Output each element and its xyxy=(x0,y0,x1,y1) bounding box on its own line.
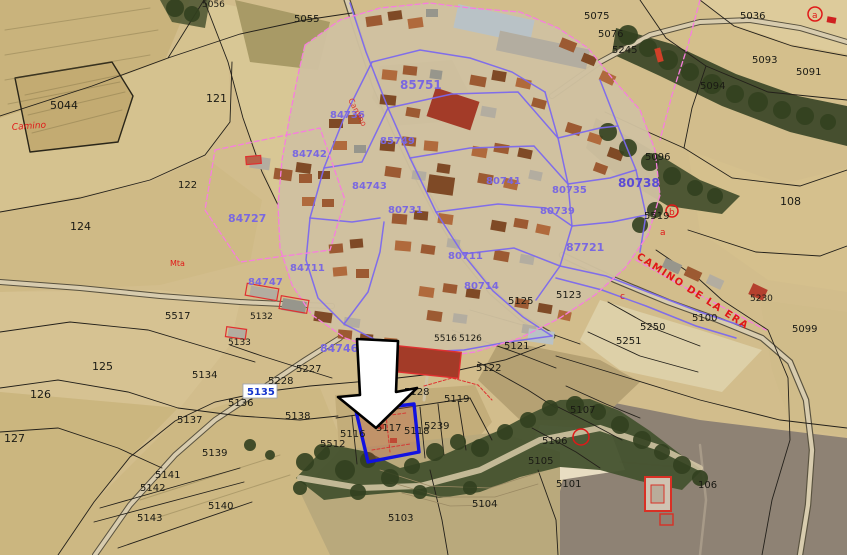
street-label-80735: 80735 xyxy=(552,185,587,196)
tree xyxy=(335,460,355,480)
parcel-label-5056: 5056 xyxy=(202,0,225,10)
building xyxy=(427,174,455,195)
parcel-label-5516: 5516 xyxy=(434,334,457,344)
map-svg: 5056505512150441221241251261275075507652… xyxy=(0,0,847,555)
parcel-label-5119: 5119 xyxy=(444,394,469,405)
tree xyxy=(796,107,814,125)
parcel-label-126: 126 xyxy=(30,388,51,401)
parcel-label-5075: 5075 xyxy=(584,11,609,22)
tree xyxy=(265,450,275,460)
street-label-87721: 87721 xyxy=(566,241,604,254)
parcel-label-5227: 5227 xyxy=(296,364,321,375)
parcel-label-5139: 5139 xyxy=(202,448,227,459)
street-label-80711: 80711 xyxy=(448,251,483,262)
parcel-label-5104: 5104 xyxy=(472,499,497,510)
tree xyxy=(707,188,723,204)
tree xyxy=(184,6,200,22)
tree xyxy=(381,469,399,487)
parcel-label-5142: 5142 xyxy=(140,483,165,494)
tree xyxy=(673,456,691,474)
parcel-label-5055: 5055 xyxy=(294,14,319,25)
parcel-label-5141: 5141 xyxy=(155,470,180,481)
street-label-85749: 85749 xyxy=(380,136,415,147)
parcel-label-125: 125 xyxy=(92,360,113,373)
building xyxy=(418,286,434,298)
building xyxy=(322,199,334,207)
parcel-label-5099: 5099 xyxy=(792,324,817,335)
building xyxy=(333,266,348,276)
tree xyxy=(293,481,307,495)
parcel-label-5245: 5245 xyxy=(612,45,637,56)
parcel-label-5132: 5132 xyxy=(250,312,273,322)
parcel-label-5126: 5126 xyxy=(459,334,482,344)
building xyxy=(436,163,450,174)
parcel-label-5123: 5123 xyxy=(556,290,581,301)
tree xyxy=(726,85,744,103)
parcel-label-121: 121 xyxy=(206,92,227,105)
parcel-label-5096: 5096 xyxy=(645,152,670,163)
building xyxy=(333,141,347,150)
building xyxy=(356,269,369,278)
parcel-label-5100: 5100 xyxy=(692,313,717,324)
parcel-label-106: 106 xyxy=(698,480,717,491)
building xyxy=(295,162,311,174)
label-a: a xyxy=(660,228,666,238)
parcel-label-108: 108 xyxy=(780,195,801,208)
parcel-label-5230: 5230 xyxy=(750,294,773,304)
tree xyxy=(639,39,657,57)
parcel-label-5121: 5121 xyxy=(504,341,529,352)
parcel-label-5076: 5076 xyxy=(598,29,623,40)
parcel-label-5036: 5036 xyxy=(740,11,765,22)
parcel-label-124: 124 xyxy=(70,220,91,233)
parcel-label-5125: 5125 xyxy=(508,296,533,307)
parcel-label-5118: 5118 xyxy=(404,426,429,437)
parcel-label-5093: 5093 xyxy=(752,55,777,66)
parcel-label-5103: 5103 xyxy=(388,513,413,524)
parcel-label-5137: 5137 xyxy=(177,415,202,426)
street-label-84727: 84727 xyxy=(228,212,266,225)
tree xyxy=(773,101,791,119)
tree xyxy=(542,400,558,416)
tree xyxy=(350,484,366,500)
parcel-label-5512: 5512 xyxy=(320,439,345,450)
tree xyxy=(611,416,629,434)
tree xyxy=(654,444,670,460)
label-c: c xyxy=(620,292,625,302)
building xyxy=(382,69,398,81)
parcel-label-5250: 5250 xyxy=(640,322,665,333)
parcel-label-127: 127 xyxy=(4,432,25,445)
tree xyxy=(633,431,651,449)
building xyxy=(350,238,364,248)
label-a: a xyxy=(812,11,818,21)
street-label-84742: 84742 xyxy=(292,149,327,160)
street-label-85751: 85751 xyxy=(400,78,442,92)
red-structures-rect xyxy=(651,485,664,503)
parcel-label-5134: 5134 xyxy=(192,370,217,381)
label-b: b xyxy=(669,208,675,218)
parcel-label-5122: 5122 xyxy=(476,363,501,374)
parcel-label-5140: 5140 xyxy=(208,501,233,512)
parcel-label-5044: 5044 xyxy=(50,99,78,112)
parcel-label-5133: 5133 xyxy=(228,338,251,348)
street-label-80741: 80741 xyxy=(486,176,521,187)
parcel-label-5107: 5107 xyxy=(570,405,595,416)
tree xyxy=(681,63,699,81)
parcel-label-5101: 5101 xyxy=(556,479,581,490)
building xyxy=(424,140,439,151)
tree xyxy=(450,434,466,450)
building xyxy=(380,94,397,106)
street-label-84747: 84747 xyxy=(248,277,283,288)
tree xyxy=(404,458,420,474)
building xyxy=(354,145,366,153)
tree xyxy=(820,114,836,130)
aerial-cadastral-map: 5056505512150441221241251261275075507652… xyxy=(0,0,847,555)
building xyxy=(426,310,442,322)
building xyxy=(318,171,330,179)
building xyxy=(395,240,412,251)
parcel-label-5143: 5143 xyxy=(137,513,162,524)
tree xyxy=(471,439,489,457)
parcel-label-5228: 5228 xyxy=(268,376,293,387)
tree xyxy=(244,439,256,451)
parcel-label-5138: 5138 xyxy=(285,411,310,422)
tree xyxy=(687,180,703,196)
tree xyxy=(619,139,637,157)
street-label-84746: 84746 xyxy=(320,342,359,355)
red-structures-rect xyxy=(246,155,262,164)
building xyxy=(299,174,312,183)
building xyxy=(407,17,423,29)
parcel-label-5094: 5094 xyxy=(700,81,725,92)
tree xyxy=(413,485,427,499)
label-mta: Mta xyxy=(170,259,185,268)
parcel-label-5106: 5106 xyxy=(542,436,567,447)
street-label-84743: 84743 xyxy=(352,181,387,192)
parcel-label-5136: 5136 xyxy=(228,398,253,409)
tree xyxy=(520,412,536,428)
label-5135: 5135 xyxy=(247,387,275,398)
parcel-label-5251: 5251 xyxy=(616,336,641,347)
tree xyxy=(426,443,444,461)
parcel-label-5091: 5091 xyxy=(796,67,821,78)
parcel-label-5519: 5519 xyxy=(644,211,669,222)
tree xyxy=(663,167,681,185)
street-label-80739: 80739 xyxy=(540,206,575,217)
building xyxy=(426,9,438,17)
tree xyxy=(748,92,768,112)
street-label-80714: 80714 xyxy=(464,281,499,292)
building xyxy=(403,65,418,75)
tree xyxy=(463,481,477,495)
tree xyxy=(296,453,314,471)
parcel-label-5517: 5517 xyxy=(165,311,190,322)
parcel-label-5105: 5105 xyxy=(528,456,553,467)
street-label-80738: 80738 xyxy=(618,176,660,190)
street-label-80731: 80731 xyxy=(388,205,423,216)
parcel-label-122: 122 xyxy=(178,180,197,191)
tree xyxy=(497,424,513,440)
street-label-84711: 84711 xyxy=(290,263,325,274)
